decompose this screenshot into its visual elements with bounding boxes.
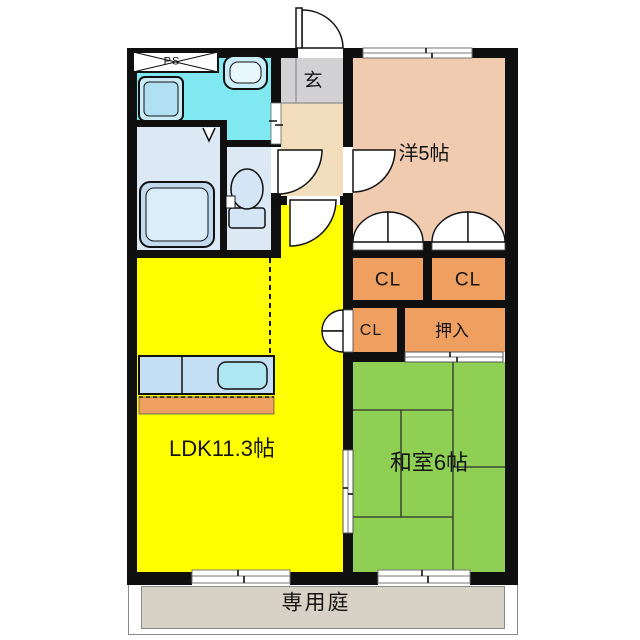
- japanese-room-label: 和室6帖: [390, 452, 468, 474]
- ldk-label: LDK11.3帖: [169, 438, 275, 460]
- closet-a-label: CL: [375, 271, 401, 290]
- garden-label: 専用庭: [282, 593, 351, 614]
- closet-c-label: CL: [360, 323, 382, 339]
- western-room-window: [363, 48, 472, 58]
- closet-b-label: CL: [455, 271, 481, 290]
- room-toilet: [227, 147, 271, 250]
- entrance-door: [296, 8, 343, 58]
- pipe-space-label: PS: [164, 57, 181, 68]
- oshiire-sliding-door: [405, 352, 503, 362]
- japanese-room-sliding-door: [343, 450, 353, 533]
- room-ldk-corridor: [281, 205, 343, 258]
- entrance-label: 玄: [303, 72, 322, 91]
- oshiire-label: 押入: [435, 323, 469, 340]
- room-bathroom: [137, 127, 220, 250]
- western-room-label: 洋5帖: [398, 144, 449, 164]
- floor-plan: PS 玄 洋5帖 CL CL CL 押入 LDK11.3帖 和室6帖 専用庭: [0, 0, 640, 640]
- room-ldk: [137, 258, 343, 572]
- room-hallway: [281, 103, 343, 196]
